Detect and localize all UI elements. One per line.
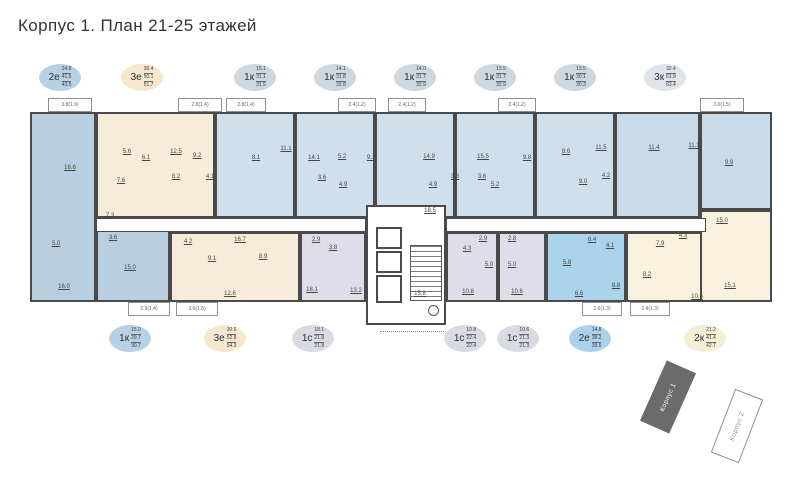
room-area-label: 7.3 [106, 213, 114, 219]
apartment-areas: 15.131.131.5 [256, 66, 266, 88]
room-area-label: 16.0 [58, 284, 70, 290]
apartment-areas: 14.838.239.6 [592, 327, 602, 349]
elevator-shaft [376, 275, 402, 303]
room-area-label: 6.4 [588, 237, 596, 243]
room-area-label: 4.9 [339, 182, 347, 188]
keyplan-building-2[interactable]: Корпус 2 [711, 389, 763, 463]
area-value: 10.6 [519, 327, 529, 335]
area-value: 10.8 [466, 327, 476, 335]
apartment-badge-bottom-1[interactable]: 3е30.652.854.3 [204, 325, 246, 352]
apartment-3k[interactable] [615, 112, 700, 218]
apartment-badge-bottom-5[interactable]: 2е14.838.239.6 [569, 325, 611, 352]
room-area-label: 8.9 [259, 254, 267, 260]
apartment-badge-top-4[interactable]: 1к14.031.732.9 [394, 64, 436, 91]
room-area-label: 18.5 [424, 208, 436, 214]
area-value: 52.8 [227, 335, 237, 343]
area-value: 31.7 [496, 74, 506, 82]
balcony: 3.0(1.5) [700, 98, 744, 112]
room-area-label: 16.7 [234, 237, 246, 243]
area-value: 14.0 [416, 66, 426, 74]
area-value: 21.3 [519, 335, 529, 343]
apartment-areas: 21.241.442.7 [706, 327, 716, 349]
room-area-label: 3.6 [451, 174, 459, 180]
apartment-areas: 13.931.732.9 [496, 66, 506, 88]
room-area-label: 9.9 [725, 160, 733, 166]
apartment-areas: 14.031.732.9 [416, 66, 426, 88]
balcony: 2.8(1.4) [226, 98, 266, 112]
area-value: 41.4 [706, 335, 716, 343]
keyplan-building-2-label: Корпус 2 [728, 411, 745, 442]
apartment-type-label: 1к [404, 72, 414, 83]
apartment-areas: 13.530.130.3 [576, 66, 586, 88]
area-value: 42.7 [706, 343, 716, 350]
room-area-label: 10.8 [462, 289, 474, 295]
room-area-label: 15.8 [414, 291, 426, 297]
room-area-label: 9.2 [367, 155, 375, 161]
balcony: 2.6(1.3) [582, 302, 622, 316]
room-area-label: 2.9 [479, 236, 487, 242]
apartment-2e-left[interactable] [30, 112, 96, 302]
apartment-type-label: 2к [694, 333, 704, 344]
room-area-label: 15.0 [124, 265, 136, 271]
area-value: 32.9 [416, 82, 426, 89]
area-value: 18.1 [314, 327, 324, 335]
area-value: 14.1 [336, 66, 346, 74]
apartment-areas: 30.652.854.3 [227, 327, 237, 349]
apartment-type-label: 2е [49, 72, 60, 83]
apartment-areas: 30.450.151.7 [144, 66, 154, 88]
area-value: 61.9 [666, 74, 676, 82]
room-area-label: 5.0 [508, 262, 516, 268]
room-area-label: 5.6 [123, 149, 131, 155]
room-area-label: 2.8 [508, 236, 516, 242]
room-area-label: 4.1 [206, 174, 214, 180]
area-value: 50.1 [144, 74, 154, 82]
area-value: 32.8 [336, 82, 346, 89]
apartment-type-label: 1с [302, 333, 313, 344]
apartment-3k-wing[interactable] [700, 112, 772, 210]
area-value: 21.8 [314, 335, 324, 343]
area-value: 51.7 [144, 82, 154, 89]
area-value: 14.8 [592, 327, 602, 335]
area-value: 13.5 [576, 66, 586, 74]
area-value: 41.6 [62, 74, 72, 82]
balcony: 2.4(1.2) [338, 98, 376, 112]
area-value: 38.2 [592, 335, 602, 343]
room-area-label: 8.6 [562, 149, 570, 155]
room-area-label: 8.8 [612, 283, 620, 289]
apartment-type-label: 2е [579, 333, 590, 344]
apartment-areas: 24.841.643.5 [62, 66, 72, 88]
room-area-label: 4.9 [429, 182, 437, 188]
leader-line [380, 331, 444, 332]
apartment-type-label: 1к [244, 72, 254, 83]
room-area-label: 9.0 [579, 179, 587, 185]
floorplan-page: Корпус 1. План 21-25 этажей Корпус 1 Кор… [0, 0, 800, 480]
area-value: 15.1 [256, 66, 266, 74]
area-value: 30.3 [576, 82, 586, 89]
apartment-type-label: 3е [131, 72, 142, 83]
room-area-label: 5.2 [491, 182, 499, 188]
room-area-label: 4.2 [602, 173, 610, 179]
room-area-label: 11.5 [595, 145, 606, 151]
room-area-label: 16.6 [64, 165, 76, 171]
area-value: 30.7 [131, 343, 141, 350]
room-area-label: 3.6 [318, 175, 326, 181]
apartment-1k-top-1[interactable] [215, 112, 295, 218]
room-area-label: 8.2 [643, 272, 651, 278]
room-area-label: 4.1 [606, 243, 614, 249]
apartment-badge-top-0[interactable]: 2е24.841.643.5 [39, 64, 81, 91]
room-area-label: 11.4 [648, 145, 659, 151]
apartment-areas: 15.029.730.7 [131, 327, 141, 349]
apartment-badge-top-3[interactable]: 1к14.131.832.8 [314, 64, 356, 91]
area-value: 63.4 [666, 82, 676, 89]
area-value: 30.1 [576, 74, 586, 82]
building-core [366, 205, 446, 325]
room-area-label: 12.6 [224, 291, 236, 297]
room-area-label: 11.1 [280, 146, 291, 152]
elevator-shaft [376, 251, 402, 273]
room-area-label: 10.6 [511, 289, 523, 295]
apartment-type-label: 1к [564, 72, 574, 83]
room-area-label: 12.5 [170, 149, 182, 155]
balcony: 3.0(1.5) [176, 302, 218, 316]
keyplan-building-1-label: Корпус 1 [659, 382, 678, 413]
apartment-1k-top-3[interactable] [375, 112, 455, 218]
room-area-label: 15.0 [716, 218, 728, 224]
apartment-badge-top-5[interactable]: 1к13.931.732.9 [474, 64, 516, 91]
room-area-label: 7.9 [656, 241, 664, 247]
vent-shaft-icon [428, 305, 439, 316]
area-value: 31.1 [256, 74, 266, 82]
room-area-label: 18.1 [306, 287, 318, 293]
apartment-badge-top-1[interactable]: 3е30.450.151.7 [121, 64, 163, 91]
area-value: 22.4 [466, 343, 476, 350]
apartment-areas: 10.822.422.4 [466, 327, 476, 349]
area-value: 31.5 [256, 82, 266, 89]
apartment-1k-top-2[interactable] [295, 112, 375, 218]
corridor [446, 218, 706, 232]
apartment-type-label: 3е [214, 333, 225, 344]
apartment-badge-top-2[interactable]: 1к15.131.131.5 [234, 64, 276, 91]
balcony: 2.8(1.4) [178, 98, 222, 112]
area-value: 32.4 [666, 66, 676, 74]
room-area-label: 4.3 [679, 233, 687, 239]
room-area-label: 10.5 [691, 294, 703, 300]
apartment-type-label: 1к [119, 333, 129, 344]
apartment-badge-top-7[interactable]: 3к32.461.963.4 [644, 64, 686, 91]
room-area-label: 5.0 [52, 241, 60, 247]
apartment-badge-bottom-6[interactable]: 2к21.241.442.7 [684, 325, 726, 352]
room-area-label: 5.0 [485, 262, 493, 268]
apartment-badge-bottom-0[interactable]: 1к15.029.730.7 [109, 325, 151, 352]
room-area-label: 14.1 [308, 155, 320, 161]
area-value: 31.7 [416, 74, 426, 82]
apartment-type-label: 1к [324, 72, 334, 83]
apartment-badge-bottom-4[interactable]: 1с10.621.321.3 [497, 325, 539, 352]
balcony: 3.8(1.9) [48, 98, 92, 112]
area-value: 54.3 [227, 343, 237, 350]
area-value: 32.9 [496, 82, 506, 89]
keyplan-building-1[interactable]: Корпус 1 [640, 360, 696, 433]
apartment-type-label: 1к [484, 72, 494, 83]
apartment-areas: 14.131.832.8 [336, 66, 346, 88]
balcony: 2.4(1.2) [498, 98, 536, 112]
room-area-label: 8.1 [252, 155, 260, 161]
room-area-label: 3.6 [478, 174, 486, 180]
apartment-areas: 32.461.963.4 [666, 66, 676, 88]
area-value: 31.8 [336, 74, 346, 82]
apartment-badge-bottom-3[interactable]: 1с10.822.422.4 [444, 325, 486, 352]
corridor [96, 218, 366, 232]
area-value: 30.4 [144, 66, 154, 74]
room-area-label: 9.2 [193, 153, 201, 159]
area-value: 39.6 [592, 343, 602, 350]
area-value: 21.3 [519, 343, 529, 350]
room-area-label: 15.5 [477, 154, 489, 160]
balcony: 2.4(1.2) [388, 98, 426, 112]
room-area-label: 13.2 [350, 288, 362, 294]
room-area-label: 5.8 [563, 260, 571, 266]
floor-plan: Корпус 1 Корпус 2 3.8(1.9)2.8(1.4)2.8(1.… [0, 0, 800, 480]
area-value: 21.2 [706, 327, 716, 335]
apartment-3e-top[interactable] [96, 112, 215, 218]
room-area-label: 15.1 [724, 283, 736, 289]
apartment-areas: 18.121.821.8 [314, 327, 324, 349]
apartment-1k-top-4[interactable] [455, 112, 535, 218]
area-value: 24.8 [62, 66, 72, 74]
room-area-label: 4.3 [463, 246, 471, 252]
apartment-type-label: 1с [507, 333, 518, 344]
room-area-label: 9.1 [208, 256, 216, 262]
room-area-label: 8.2 [172, 174, 180, 180]
room-area-label: 3.6 [109, 235, 117, 241]
room-area-label: 6.1 [142, 155, 150, 161]
apartment-type-label: 1с [454, 333, 465, 344]
elevator-shaft [376, 227, 402, 249]
room-area-label: 4.2 [184, 239, 192, 245]
area-value: 29.7 [131, 335, 141, 343]
balcony: 2.9(1.4) [128, 302, 170, 316]
balcony: 2.4(1.3) [630, 302, 670, 316]
apartment-type-label: 3к [654, 72, 664, 83]
room-area-label: 6.6 [575, 291, 583, 297]
area-value: 22.4 [466, 335, 476, 343]
room-area-label: 2.9 [312, 237, 320, 243]
room-area-label: 14.9 [423, 154, 435, 160]
area-value: 15.0 [131, 327, 141, 335]
apartment-badge-top-6[interactable]: 1к13.530.130.3 [554, 64, 596, 91]
apartment-1k-top-5[interactable] [535, 112, 615, 218]
area-value: 30.6 [227, 327, 237, 335]
area-value: 13.9 [496, 66, 506, 74]
room-area-label: 11.1 [688, 143, 699, 149]
room-area-label: 3.8 [329, 245, 337, 251]
room-area-label: 9.8 [523, 155, 531, 161]
apartment-badge-bottom-2[interactable]: 1с18.121.821.8 [292, 325, 334, 352]
room-area-label: 5.2 [338, 154, 346, 160]
area-value: 21.8 [314, 343, 324, 350]
area-value: 43.5 [62, 82, 72, 89]
room-area-label: 7.6 [117, 178, 125, 184]
apartment-areas: 10.621.321.3 [519, 327, 529, 349]
